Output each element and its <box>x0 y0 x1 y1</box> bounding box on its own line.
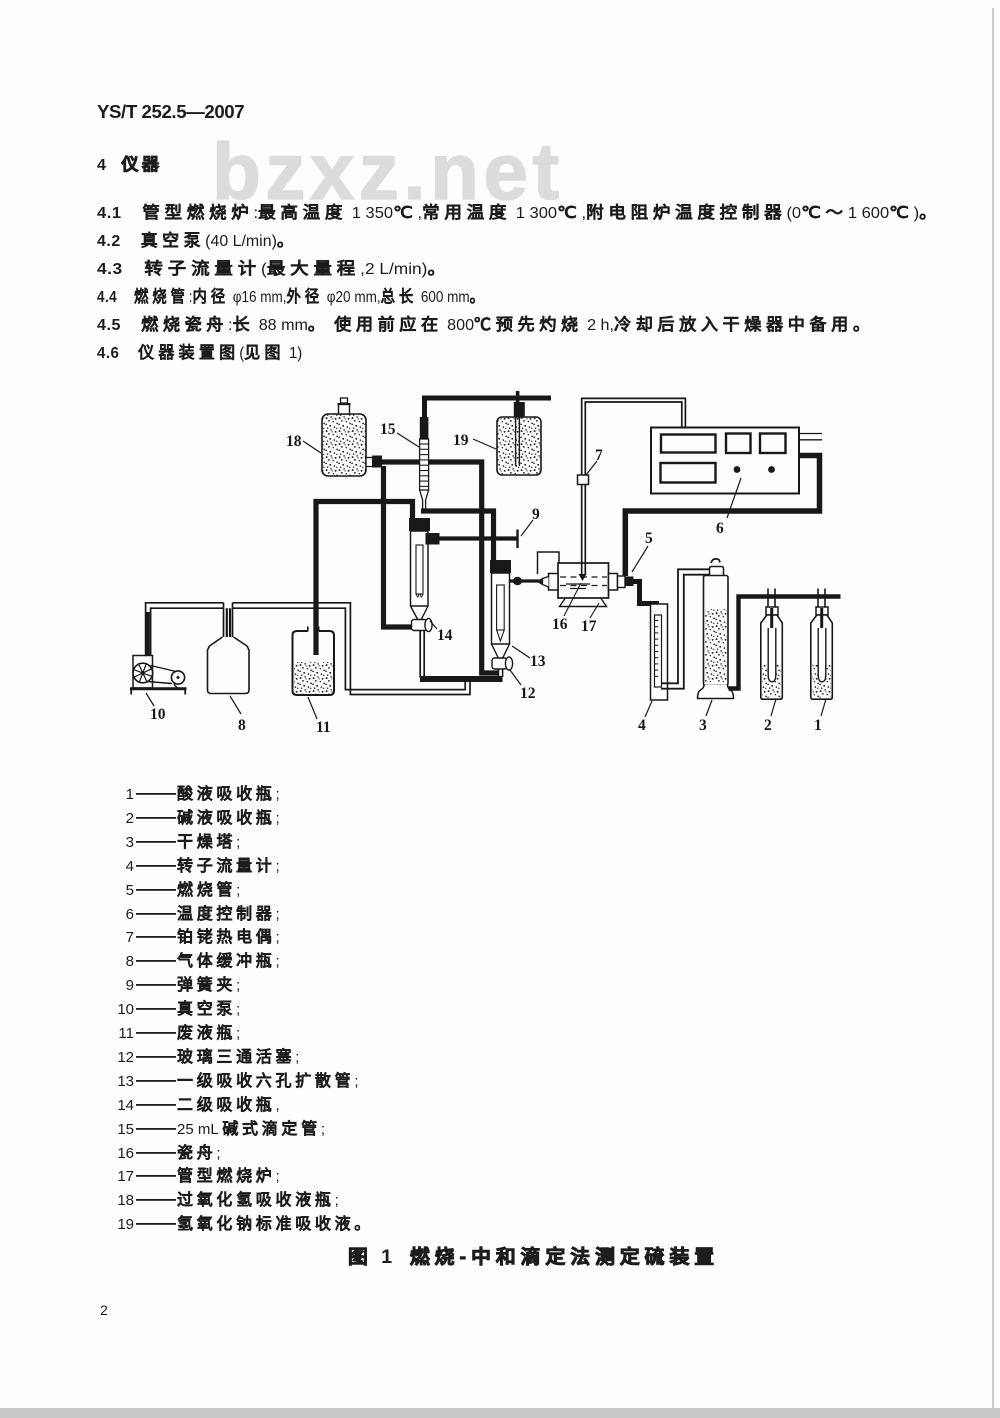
svg-text:18: 18 <box>286 433 302 450</box>
svg-text:14: 14 <box>437 627 453 644</box>
svg-text:6: 6 <box>716 520 724 537</box>
svg-text:1: 1 <box>814 717 822 734</box>
svg-text:10: 10 <box>150 706 166 723</box>
svg-text:4: 4 <box>638 717 646 734</box>
svg-text:11: 11 <box>316 719 331 736</box>
svg-text:8: 8 <box>238 717 246 734</box>
svg-text:12: 12 <box>520 685 536 702</box>
svg-text:2: 2 <box>764 717 772 734</box>
svg-text:16: 16 <box>552 616 568 633</box>
svg-text:5: 5 <box>645 530 653 547</box>
svg-text:13: 13 <box>530 653 546 670</box>
svg-text:9: 9 <box>532 506 540 523</box>
svg-text:7: 7 <box>595 447 603 464</box>
svg-text:17: 17 <box>581 618 597 635</box>
svg-text:3: 3 <box>699 717 707 734</box>
svg-text:15: 15 <box>380 421 396 438</box>
svg-text:19: 19 <box>453 432 469 449</box>
